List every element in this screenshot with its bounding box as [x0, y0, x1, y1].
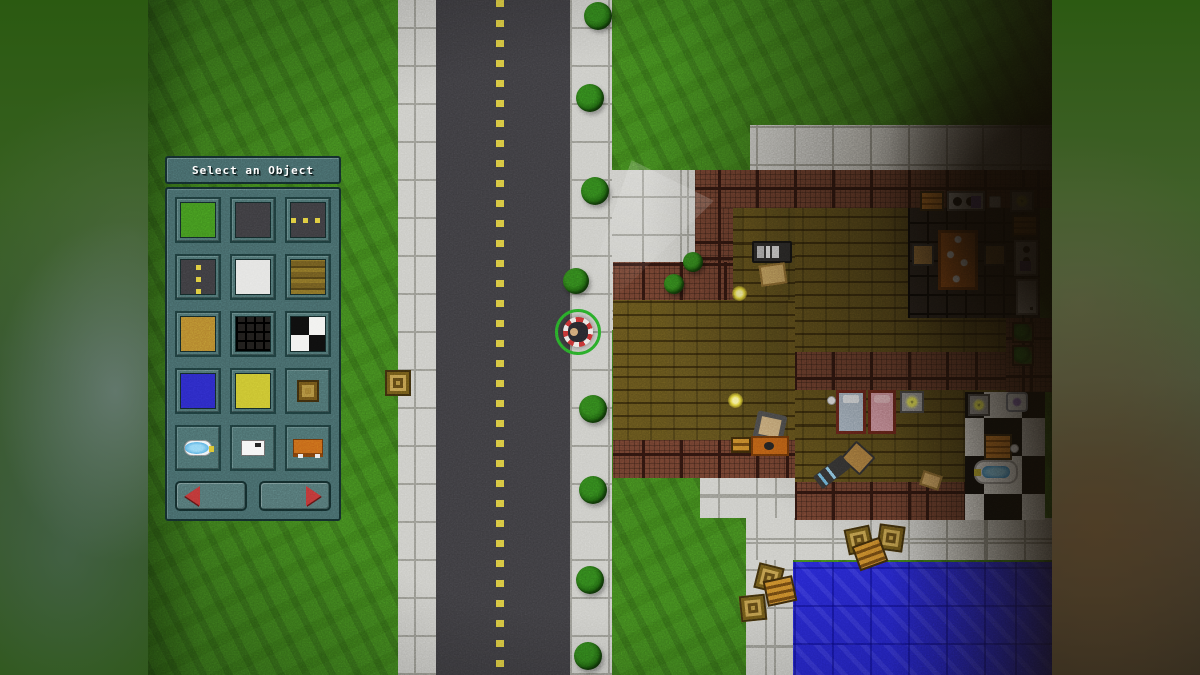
- right-arrow-icon: [306, 486, 321, 506]
- bush: [683, 252, 703, 272]
- crate-thumbnail: [290, 373, 326, 409]
- palette-tile-sand[interactable]: [175, 311, 221, 357]
- palette-tile-concrete[interactable]: [230, 254, 276, 300]
- water-thumbnail: [180, 373, 216, 409]
- map-canvas[interactable]: Select an Object: [148, 0, 1052, 675]
- object-palette-panel: Select an Object: [165, 156, 341, 521]
- blurred-backdrop-left: [0, 0, 148, 675]
- screenshot-root: Select an Object: [0, 0, 1200, 675]
- hay-thumbnail: [235, 373, 271, 409]
- next-page-button[interactable]: [259, 481, 331, 511]
- bench-thumbnail: [290, 430, 326, 466]
- panel-title: Select an Object: [165, 156, 341, 184]
- palette-tile-grass[interactable]: [175, 197, 221, 243]
- wood-thumbnail: [290, 259, 326, 295]
- left-arrow-icon: [185, 486, 200, 506]
- bathtub-thumbnail: [180, 430, 216, 466]
- asphalt-thumbnail: [235, 202, 271, 238]
- road-v-thumbnail: [180, 259, 216, 295]
- bush: [579, 476, 607, 504]
- blurred-backdrop-right: [1052, 0, 1200, 675]
- bush: [576, 84, 604, 112]
- palette-tile-crate[interactable]: [285, 368, 331, 414]
- bush: [563, 268, 589, 294]
- palette-tile-asphalt[interactable]: [230, 197, 276, 243]
- object-tile-grid: [174, 197, 332, 471]
- panel-title-text: Select an Object: [192, 164, 314, 177]
- palette-tile-bathtub[interactable]: [175, 425, 221, 471]
- prev-page-button[interactable]: [175, 481, 247, 511]
- paper-thumbnail: [235, 430, 271, 466]
- darkgrid-thumbnail: [235, 316, 271, 352]
- sand-thumbnail: [180, 316, 216, 352]
- palette-tile-bench[interactable]: [285, 425, 331, 471]
- bush: [576, 566, 604, 594]
- concrete-thumbnail: [235, 259, 271, 295]
- palette-tile-road-h[interactable]: [285, 197, 331, 243]
- palette-tile-water[interactable]: [175, 368, 221, 414]
- palette-tile-road-v[interactable]: [175, 254, 221, 300]
- road-h-thumbnail: [290, 202, 326, 238]
- bush: [581, 177, 609, 205]
- character-sprite: [568, 322, 588, 342]
- panel-body: [165, 187, 341, 521]
- palette-tile-paper[interactable]: [230, 425, 276, 471]
- palette-tile-wood[interactable]: [285, 254, 331, 300]
- bush: [574, 642, 602, 670]
- palette-tile-checker[interactable]: [285, 311, 331, 357]
- bush: [664, 274, 684, 294]
- bush: [579, 395, 607, 423]
- palette-tile-darkgrid[interactable]: [230, 311, 276, 357]
- palette-tile-hay[interactable]: [230, 368, 276, 414]
- player-character[interactable]: [555, 309, 601, 355]
- bush: [584, 2, 612, 30]
- checker-thumbnail: [290, 316, 326, 352]
- palette-nav: [174, 481, 332, 511]
- grass-thumbnail: [180, 202, 216, 238]
